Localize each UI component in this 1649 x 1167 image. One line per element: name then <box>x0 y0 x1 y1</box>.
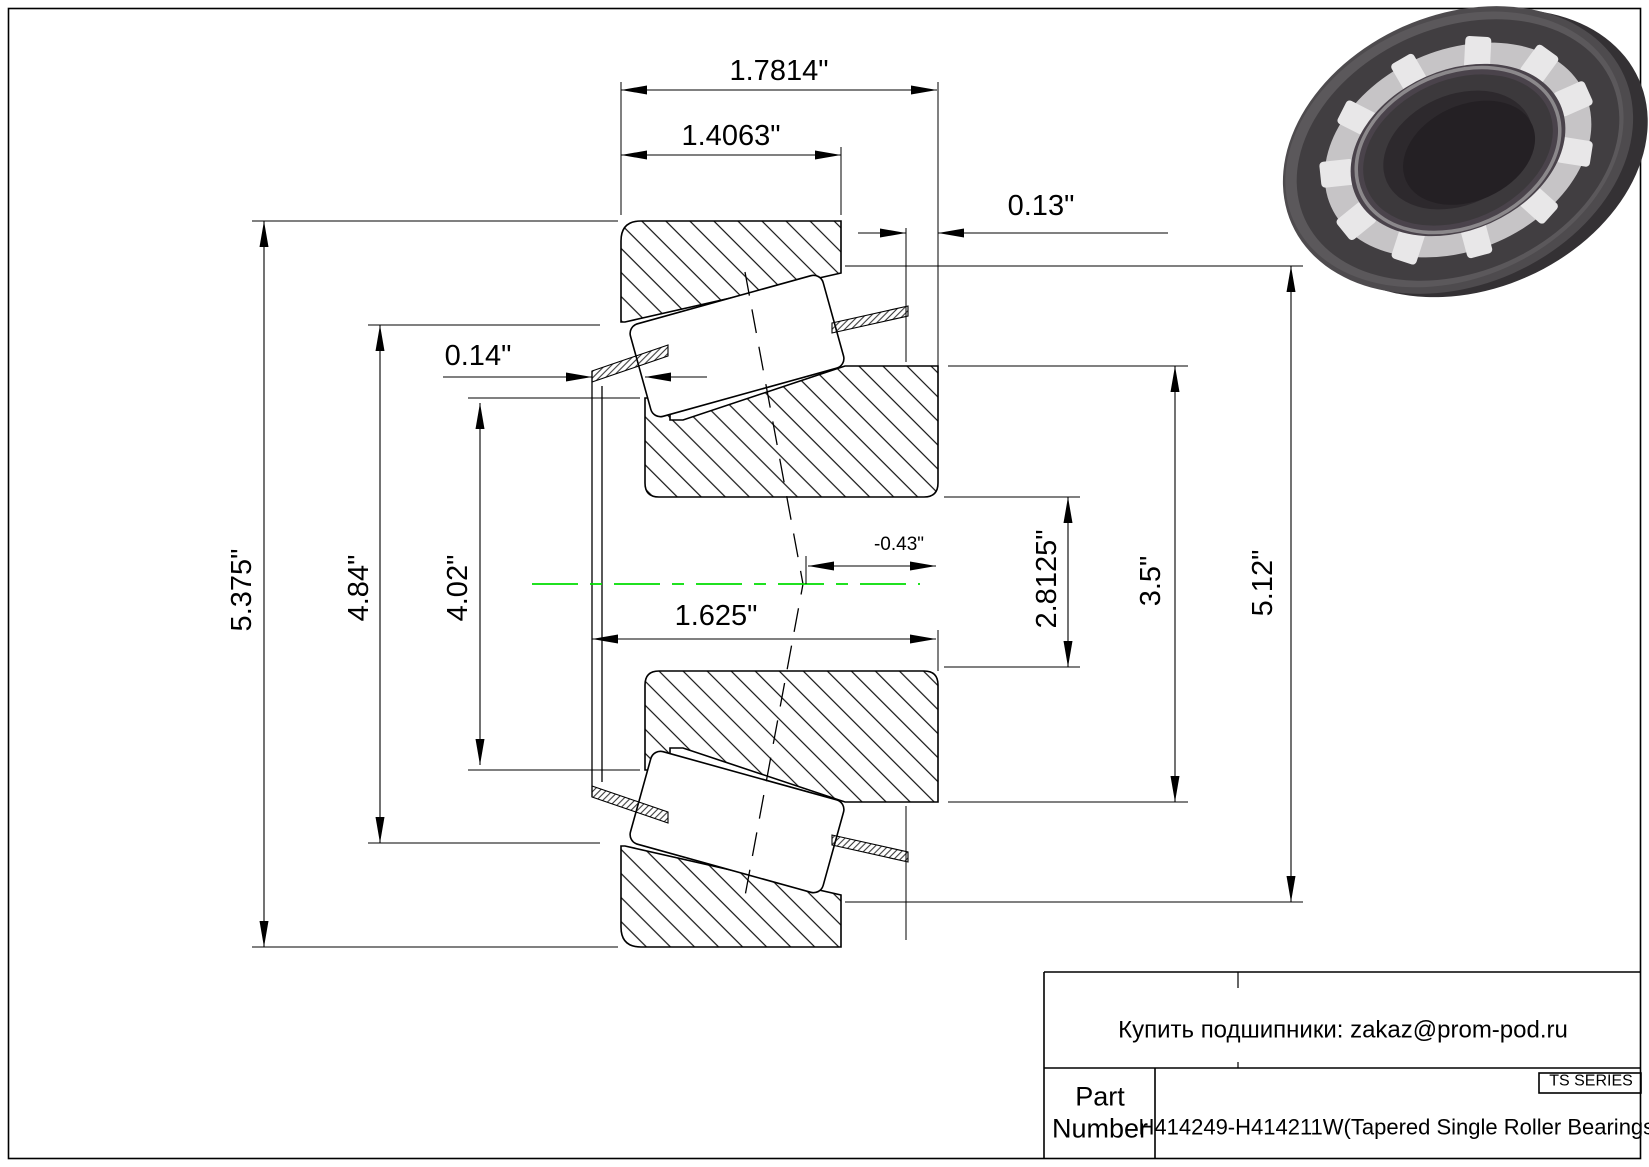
dim-cup-od-label: 5.375" <box>227 549 257 632</box>
dim-inner-width-label: 1.625" <box>675 601 758 631</box>
series-label: TS SERIES <box>1549 1074 1633 1091</box>
bearing-drawing-page: 1.7814" 1.4063" 0.13" 0.14" 5.375" 4.84"… <box>0 0 1649 1167</box>
part-number-value: H414249-H414211W(Tapered Single Roller B… <box>1139 1115 1649 1138</box>
dim-cone-front-od-label: 4.02" <box>443 555 473 622</box>
dim-overall-width-label: 1.7814" <box>730 56 829 86</box>
dim-cone-od-label: 3.5" <box>1136 556 1166 607</box>
dim-cage-standout-label: 0.14" <box>445 341 512 371</box>
dim-effective-center-label: -0.43" <box>874 535 924 555</box>
dim-cup-standout-label: 0.13" <box>1008 191 1075 221</box>
dim-bore-dia-label: 2.8125" <box>1032 530 1062 629</box>
bearing-3d-render <box>1237 0 1649 356</box>
dim-outer-ref-label: 5.12" <box>1248 550 1278 617</box>
dim-cup-width-label: 1.4063" <box>682 121 781 151</box>
contact-email-text: Купить подшипники: zakaz@prom-pod.ru <box>1118 1017 1568 1042</box>
dim-cage-od-label: 4.84" <box>344 555 374 622</box>
part-number-label: Part Number <box>1052 1081 1148 1146</box>
